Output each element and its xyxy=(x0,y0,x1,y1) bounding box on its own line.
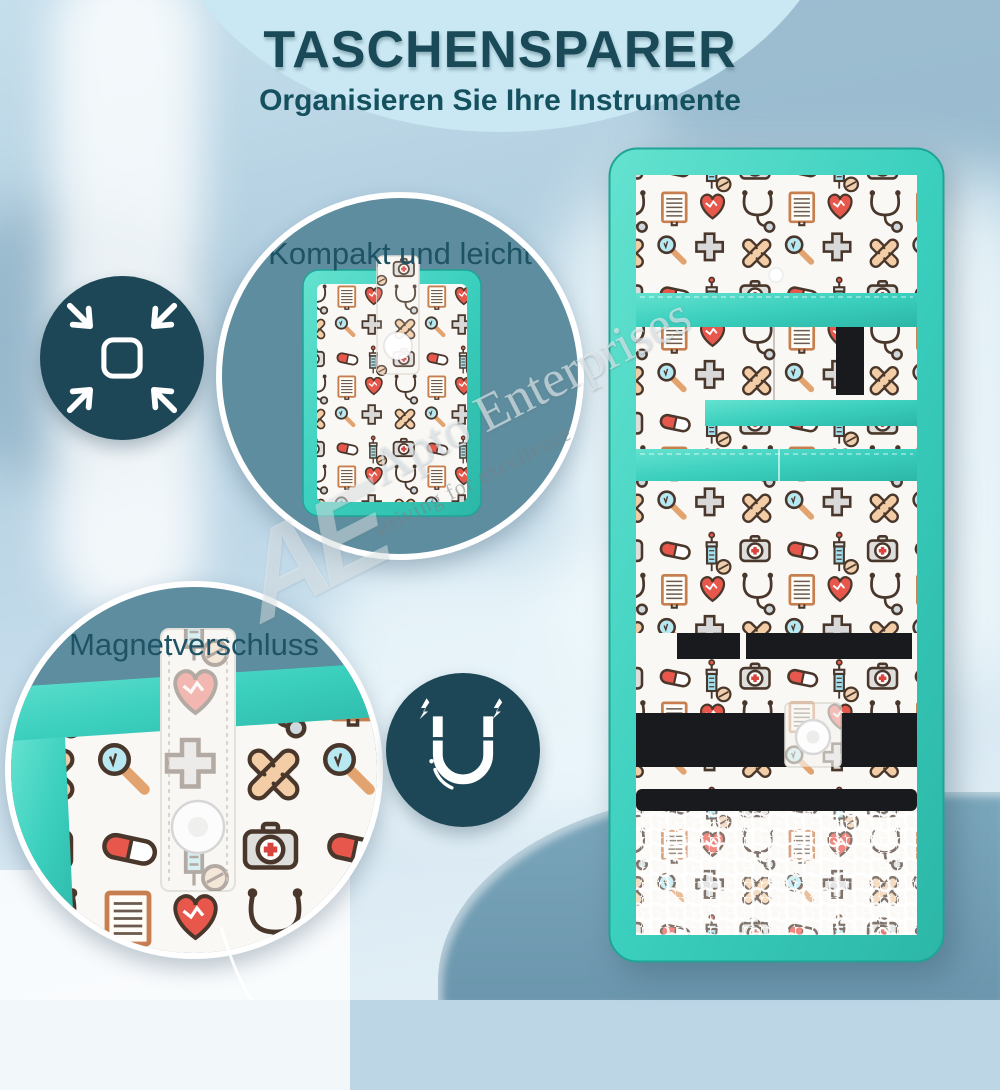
product-image xyxy=(608,147,945,963)
page-subtitle: Organisieren Sie Ihre Instrumente xyxy=(0,84,1000,118)
closeup-snap-tab xyxy=(161,629,235,891)
compress-arrows-icon xyxy=(40,276,204,440)
pocket-trim-band xyxy=(636,293,917,327)
page-title: TASCHENSPARER xyxy=(0,20,1000,80)
elastic-band-wide xyxy=(636,713,917,767)
snap-button xyxy=(384,332,412,360)
magnet-callout-circle: Magnetverschluss xyxy=(5,581,383,959)
mesh-pocket-trim xyxy=(636,789,917,811)
elastic-loop xyxy=(746,633,912,659)
compact-callout-label: Kompakt und leicht xyxy=(222,236,578,272)
snap-stud xyxy=(769,268,783,282)
elastic-loop xyxy=(836,327,864,395)
magnet-icon xyxy=(386,673,540,827)
large-pocket xyxy=(636,481,917,633)
closeup-trim-left xyxy=(11,737,75,953)
mesh-pocket xyxy=(636,811,917,935)
product-snap-tab xyxy=(785,703,841,767)
pocket-trim-band xyxy=(705,400,917,426)
elastic-loop xyxy=(677,633,740,659)
pocket-row xyxy=(636,327,917,400)
magnet-callout-label: Magnetverschluss xyxy=(11,627,377,663)
compact-callout-circle: Kompakt und leicht xyxy=(216,192,584,560)
folded-product-image xyxy=(300,254,486,522)
folded-product-snap-tab xyxy=(377,256,419,374)
